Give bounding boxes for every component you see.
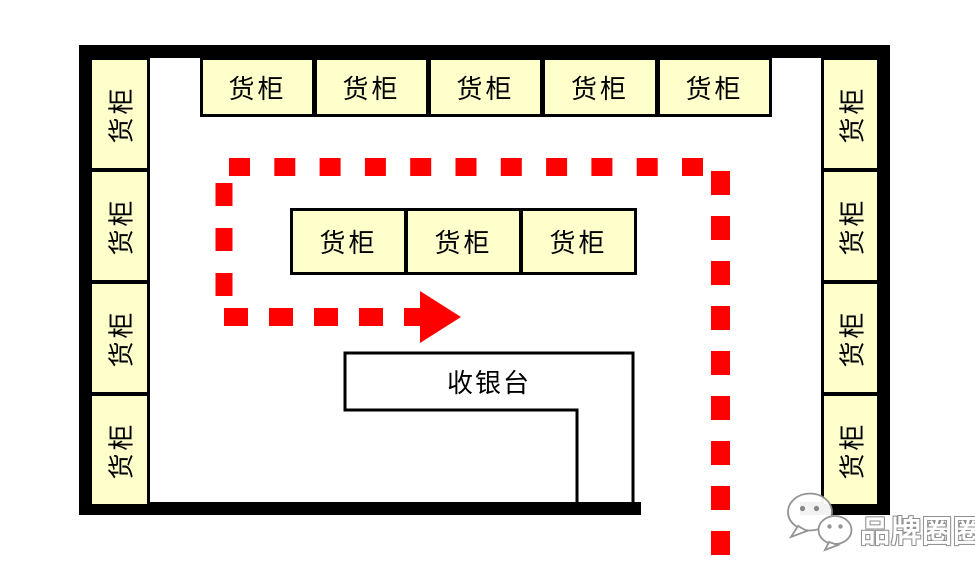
shelf-label: 货柜 [101,309,138,367]
shelf-label: 货柜 [101,421,138,479]
shelf-label: 货柜 [549,223,607,260]
shelf-right-2: 货柜 [821,169,880,283]
shelf-middle-1: 货柜 [290,208,407,275]
shelf-label: 货柜 [685,69,743,106]
shelf-right-4: 货柜 [821,393,880,507]
shelf-label: 货柜 [832,309,869,367]
shelf-label: 货柜 [456,69,514,106]
shelf-label: 货柜 [319,223,377,260]
shelf-left-1: 货柜 [89,57,150,171]
shelf-label: 货柜 [434,223,492,260]
wall-bottom-left [79,502,641,515]
shelf-label: 货柜 [832,197,869,255]
watermark-text: 品牌圈圈 [860,507,975,551]
shelf-left-4: 货柜 [89,393,150,507]
shelf-label: 货柜 [832,85,869,143]
path-arrow-icon [420,291,461,343]
wechat-icon [786,492,858,552]
shelf-top-4: 货柜 [542,57,658,117]
shelf-top-1: 货柜 [200,57,315,117]
watermark: 品牌圈圈 [786,492,975,552]
shelf-top-5: 货柜 [657,57,772,117]
cashier-label: 收银台 [345,353,633,410]
shelf-label: 货柜 [101,197,138,255]
shelf-top-2: 货柜 [314,57,429,117]
shelf-label: 货柜 [228,69,286,106]
shelf-top-3: 货柜 [428,57,543,117]
shelf-label: 货柜 [571,69,629,106]
shelf-middle-3: 货柜 [520,208,637,275]
shelf-middle-2: 货柜 [405,208,522,275]
shelf-label: 货柜 [101,85,138,143]
shelf-label: 货柜 [832,421,869,479]
shelf-right-1: 货柜 [821,57,880,171]
shelf-label: 货柜 [342,69,400,106]
shelf-left-3: 货柜 [89,281,150,395]
shelf-left-2: 货柜 [89,169,150,283]
store-layout-diagram: 货柜 货柜 货柜 货柜 货柜 货柜 货柜 货柜 货柜 货柜 货柜 货柜 货柜 货… [0,0,975,566]
shelf-right-3: 货柜 [821,281,880,395]
